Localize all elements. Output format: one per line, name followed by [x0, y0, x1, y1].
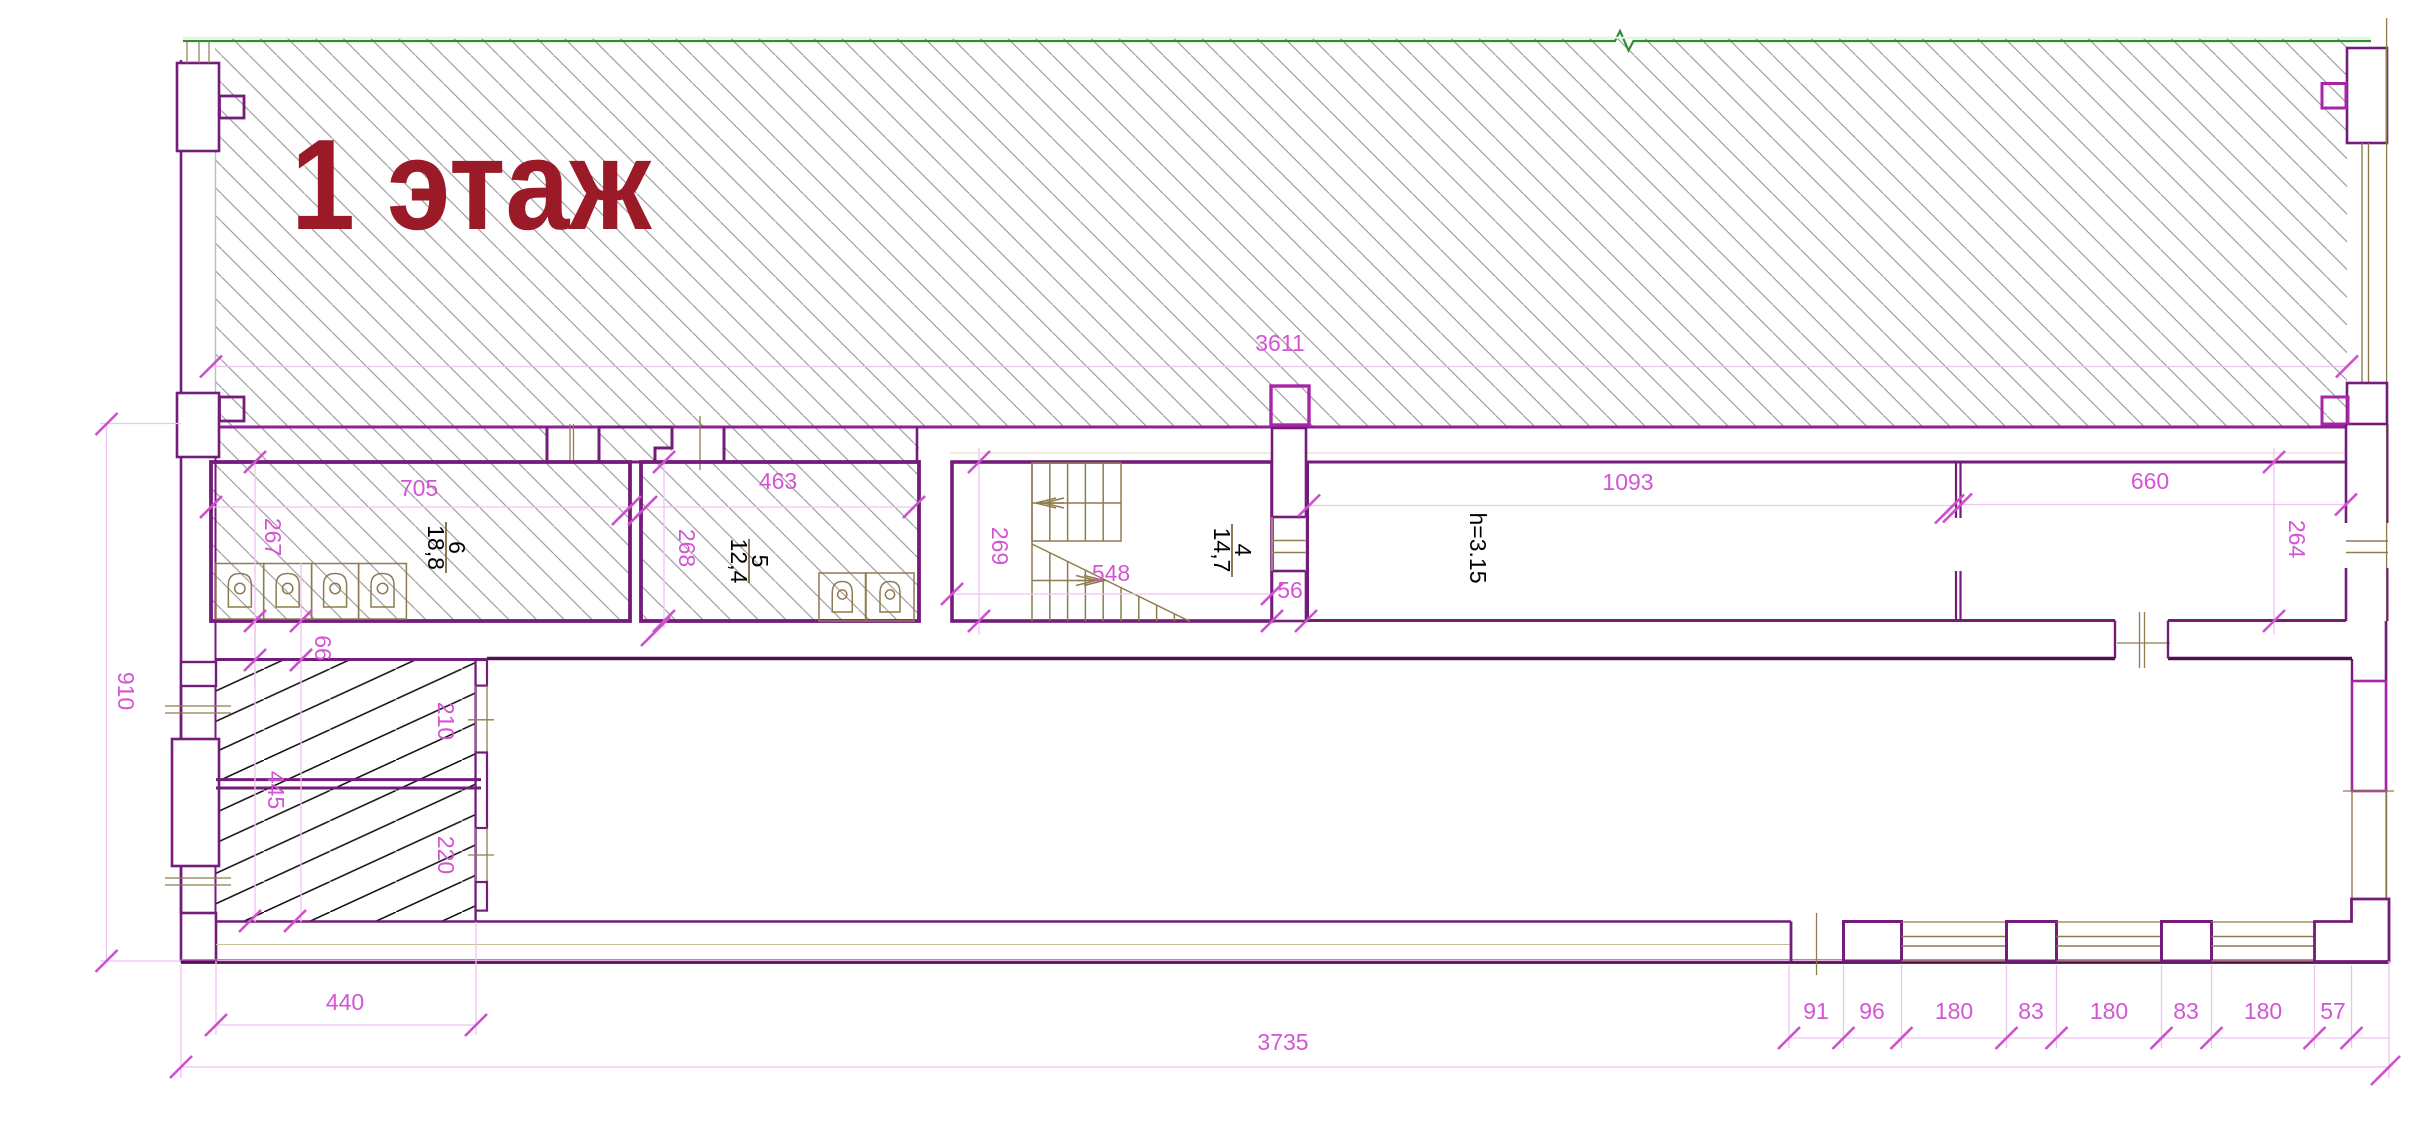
- svg-text:18,8: 18,8: [423, 525, 449, 570]
- svg-text:268: 268: [674, 529, 700, 567]
- svg-text:705: 705: [400, 475, 438, 501]
- svg-text:264: 264: [2284, 520, 2310, 559]
- svg-text:91: 91: [1803, 998, 1829, 1024]
- svg-text:220: 220: [433, 836, 459, 874]
- svg-text:463: 463: [759, 468, 797, 494]
- svg-text:83: 83: [2173, 998, 2199, 1024]
- svg-text:96: 96: [1859, 998, 1885, 1024]
- svg-text:267: 267: [260, 518, 286, 556]
- svg-text:210: 210: [433, 702, 459, 740]
- svg-text:548: 548: [1092, 560, 1130, 586]
- svg-text:3735: 3735: [1257, 1029, 1308, 1055]
- svg-text:12,4: 12,4: [726, 539, 752, 584]
- svg-text:910: 910: [113, 672, 139, 710]
- svg-text:180: 180: [2244, 998, 2282, 1024]
- svg-text:3611: 3611: [1255, 330, 1304, 356]
- svg-text:57: 57: [2320, 998, 2346, 1024]
- svg-text:1 этаж: 1 этаж: [291, 113, 652, 257]
- svg-text:14,7: 14,7: [1209, 528, 1235, 573]
- svg-text:66: 66: [310, 635, 336, 661]
- svg-text:56: 56: [1277, 577, 1303, 603]
- svg-text:180: 180: [1935, 998, 1973, 1024]
- svg-text:445: 445: [263, 771, 289, 809]
- svg-text:83: 83: [2018, 998, 2044, 1024]
- svg-text:1093: 1093: [1602, 469, 1653, 495]
- svg-text:180: 180: [2090, 998, 2128, 1024]
- svg-text:269: 269: [987, 527, 1013, 565]
- svg-text:660: 660: [2131, 468, 2169, 494]
- svg-text:440: 440: [326, 989, 364, 1015]
- svg-text:h=3.15: h=3.15: [1465, 513, 1491, 584]
